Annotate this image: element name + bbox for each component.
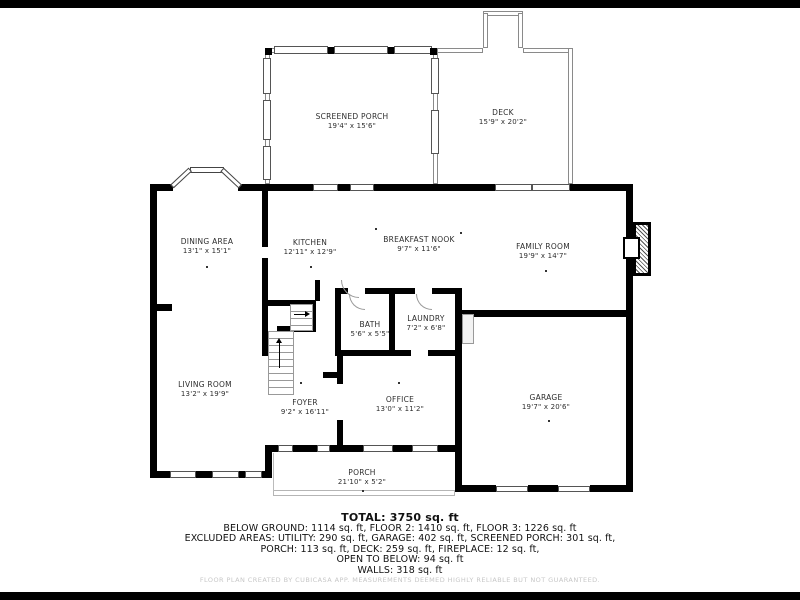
room-name: GARAGE: [522, 393, 570, 402]
room-dimensions: 13'2" x 19'9": [178, 390, 232, 398]
room-label-bath: BATH5'6" x 5'5": [351, 320, 390, 338]
room-label-garage: GARAGE19'7" x 20'6": [522, 393, 570, 411]
room-label-foyer: FOYER9'2" x 16'11": [281, 398, 329, 416]
room-dimensions: 15'9" x 20'2": [479, 118, 527, 126]
room-labels: SCREENED PORCH19'4" x 15'6"DECK15'9" x 2…: [0, 0, 800, 600]
room-name: OFFICE: [376, 395, 424, 404]
summary-line-5: WALLS: 318 sq. ft: [0, 566, 800, 576]
room-dimensions: 9'2" x 16'11": [281, 408, 329, 416]
room-dimensions: 13'0" x 11'2": [376, 405, 424, 413]
room-name: FAMILY ROOM: [516, 242, 570, 251]
room-name: BREAKFAST NOOK: [383, 235, 454, 244]
room-label-family-room: FAMILY ROOM19'9" x 14'7": [516, 242, 570, 260]
room-label-screened-porch: SCREENED PORCH19'4" x 15'6": [316, 112, 389, 130]
room-dimensions: 12'11" x 12'9": [284, 248, 337, 256]
room-label-porch: PORCH21'10" x 5'2": [338, 468, 386, 486]
room-dimensions: 21'10" x 5'2": [338, 478, 386, 486]
room-name: BATH: [351, 320, 390, 329]
area-summary: TOTAL: 3750 sq. ft BELOW GROUND: 1114 sq…: [0, 511, 800, 576]
room-dimensions: 7'2" x 6'8": [407, 324, 446, 332]
room-dimensions: 5'6" x 5'5": [351, 330, 390, 338]
room-dimensions: 19'9" x 14'7": [516, 252, 570, 260]
room-dimensions: 19'7" x 20'6": [522, 403, 570, 411]
room-name: LAUNDRY: [407, 314, 446, 323]
room-label-dining-area: DINING AREA13'1" x 15'1": [181, 237, 234, 255]
summary-lines: BELOW GROUND: 1114 sq. ft, FLOOR 2: 1410…: [0, 524, 800, 576]
floor-plan-page: SCREENED PORCH19'4" x 15'6"DECK15'9" x 2…: [0, 0, 800, 600]
room-label-kitchen: KITCHEN12'11" x 12'9": [284, 238, 337, 256]
room-name: SCREENED PORCH: [316, 112, 389, 121]
room-name: DECK: [479, 108, 527, 117]
floor-plan-canvas: SCREENED PORCH19'4" x 15'6"DECK15'9" x 2…: [0, 0, 800, 600]
room-name: FOYER: [281, 398, 329, 407]
room-label-office: OFFICE13'0" x 11'2": [376, 395, 424, 413]
room-dimensions: 9'7" x 11'6": [383, 245, 454, 253]
room-name: KITCHEN: [284, 238, 337, 247]
room-label-living-room: LIVING ROOM13'2" x 19'9": [178, 380, 232, 398]
room-name: LIVING ROOM: [178, 380, 232, 389]
room-name: DINING AREA: [181, 237, 234, 246]
room-dimensions: 19'4" x 15'6": [316, 122, 389, 130]
room-name: PORCH: [338, 468, 386, 477]
room-dimensions: 13'1" x 15'1": [181, 247, 234, 255]
room-label-deck: DECK15'9" x 20'2": [479, 108, 527, 126]
room-label-breakfast-nook: BREAKFAST NOOK9'7" x 11'6": [383, 235, 454, 253]
disclaimer-text: FLOOR PLAN CREATED BY CUBICASA APP. MEAS…: [0, 576, 800, 584]
room-label-laundry: LAUNDRY7'2" x 6'8": [407, 314, 446, 332]
